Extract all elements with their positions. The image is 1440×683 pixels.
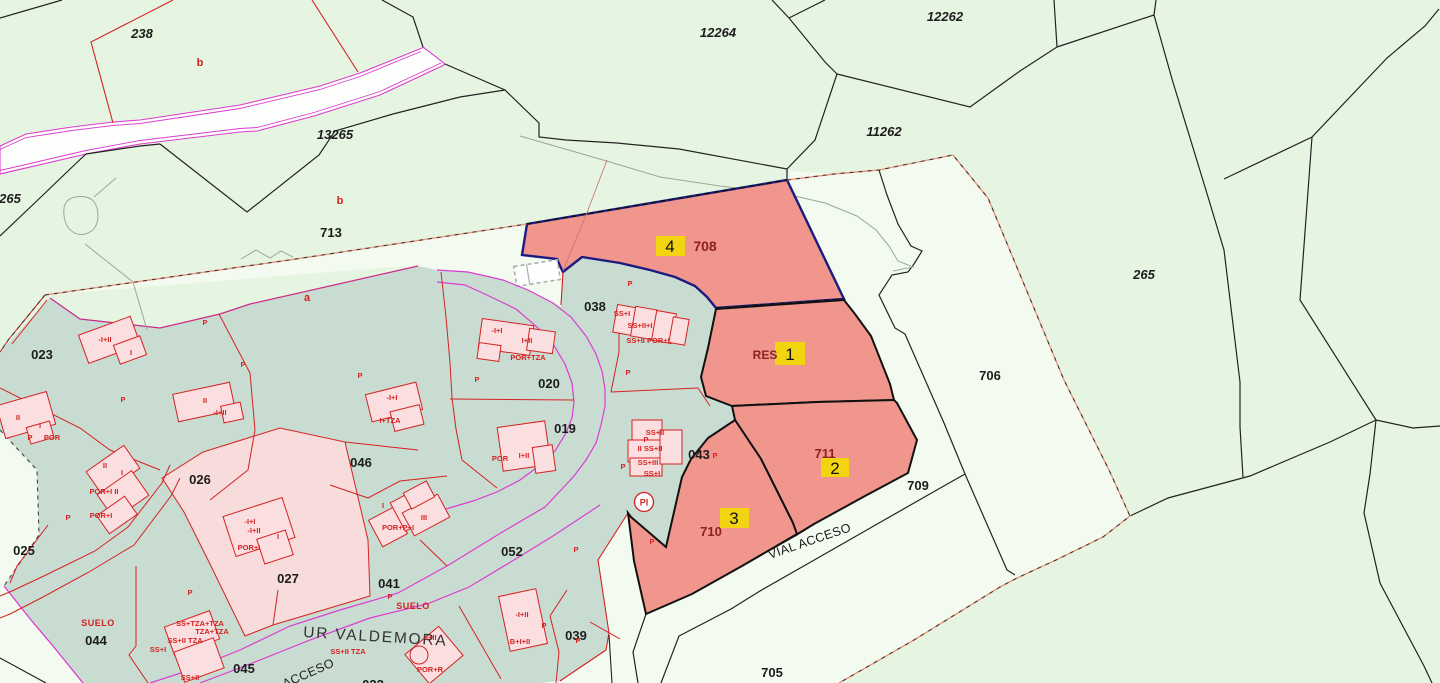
svg-text:SS+I: SS+I <box>614 309 630 318</box>
svg-text:1: 1 <box>785 345 794 364</box>
svg-text:020: 020 <box>538 376 560 391</box>
svg-text:II: II <box>103 461 107 470</box>
svg-text:SS+II: SS+II <box>646 428 665 437</box>
svg-text:-I+II: -I+II <box>98 335 111 344</box>
svg-text:RES: RES <box>753 348 778 362</box>
svg-text:P: P <box>65 513 70 522</box>
svg-text:13265: 13265 <box>317 127 354 142</box>
svg-text:II: II <box>16 413 20 422</box>
svg-text:POR+I: POR+I <box>90 511 113 520</box>
svg-text:265: 265 <box>0 191 22 206</box>
svg-text:12262: 12262 <box>927 9 964 24</box>
svg-text:P: P <box>474 375 479 384</box>
svg-text:SS+III: SS+III <box>638 458 659 467</box>
svg-text:038: 038 <box>584 299 606 314</box>
svg-text:SUELO: SUELO <box>396 601 430 611</box>
svg-text:II: II <box>203 396 207 405</box>
svg-text:POR: POR <box>492 454 509 463</box>
svg-text:-I+I: -I+I <box>386 393 397 402</box>
svg-text:023: 023 <box>31 347 53 362</box>
svg-text:044: 044 <box>85 633 107 648</box>
svg-text:TZA+TZA: TZA+TZA <box>195 627 229 636</box>
svg-text:POR+TZA: POR+TZA <box>510 353 546 362</box>
svg-text:713: 713 <box>320 225 342 240</box>
svg-text:III: III <box>421 513 427 522</box>
svg-text:12264: 12264 <box>700 25 737 40</box>
svg-text:I: I <box>39 421 41 430</box>
svg-text:b: b <box>197 57 204 69</box>
svg-text:P: P <box>625 368 630 377</box>
svg-text:SS+II POR+I: SS+II POR+I <box>626 336 669 345</box>
svg-text:265: 265 <box>1132 267 1155 282</box>
svg-text:B+I+II: B+I+II <box>510 637 530 646</box>
svg-text:P: P <box>27 433 32 442</box>
svg-text:P: P <box>357 371 362 380</box>
svg-text:022: 022 <box>362 677 384 683</box>
svg-text:P: P <box>541 621 546 630</box>
svg-text:P: P <box>575 636 580 645</box>
svg-text:P: P <box>573 545 578 554</box>
svg-text:043: 043 <box>688 447 710 462</box>
svg-text:041: 041 <box>378 576 400 591</box>
svg-text:SS+II: SS+II <box>181 673 200 682</box>
svg-text:11262: 11262 <box>866 124 902 139</box>
svg-text:P: P <box>202 318 207 327</box>
svg-text:711: 711 <box>815 446 836 461</box>
svg-text:P: P <box>187 588 192 597</box>
svg-text:4: 4 <box>665 237 674 256</box>
svg-text:2: 2 <box>830 459 839 478</box>
svg-text:b: b <box>337 195 344 207</box>
svg-text:-I+I: -I+I <box>244 517 255 526</box>
svg-text:-I+II: -I+II <box>423 633 436 642</box>
svg-text:I: I <box>382 501 384 510</box>
svg-text:I: I <box>130 348 132 357</box>
svg-text:P: P <box>620 462 625 471</box>
svg-text:I+TZA: I+TZA <box>379 416 401 425</box>
svg-text:SS+II TZA: SS+II TZA <box>330 647 366 656</box>
svg-text:-I+II: -I+II <box>247 526 260 535</box>
svg-text:3: 3 <box>729 509 738 528</box>
svg-text:PI: PI <box>640 498 649 508</box>
svg-text:POR+R: POR+R <box>417 665 444 674</box>
svg-text:019: 019 <box>554 421 576 436</box>
svg-text:II SS+II: II SS+II <box>638 444 663 453</box>
svg-text:SS+I: SS+I <box>150 645 166 654</box>
svg-text:POR: POR <box>44 433 61 442</box>
svg-text:709: 709 <box>907 478 929 493</box>
svg-text:P: P <box>387 592 392 601</box>
svg-text:052: 052 <box>501 544 523 559</box>
svg-text:I+II: I+II <box>522 336 533 345</box>
svg-text:710: 710 <box>700 524 722 539</box>
svg-text:SS+I: SS+I <box>644 469 660 478</box>
svg-text:I: I <box>121 468 123 477</box>
svg-text:P: P <box>712 451 717 460</box>
svg-text:708: 708 <box>693 238 717 254</box>
svg-text:SS+II TZA: SS+II TZA <box>167 636 203 645</box>
svg-text:POR+P+I: POR+P+I <box>382 523 414 532</box>
svg-text:P: P <box>649 537 654 546</box>
svg-text:045: 045 <box>233 661 255 676</box>
svg-text:P: P <box>240 360 245 369</box>
svg-text:SUELO: SUELO <box>81 618 115 628</box>
svg-text:POR+I II: POR+I II <box>90 487 119 496</box>
svg-text:238: 238 <box>130 26 153 41</box>
svg-text:I+II: I+II <box>519 451 530 460</box>
svg-text:026: 026 <box>189 472 211 487</box>
svg-text:-I+I: -I+I <box>491 326 502 335</box>
svg-text:027: 027 <box>277 571 299 586</box>
svg-text:046: 046 <box>350 455 372 470</box>
svg-text:POR+I: POR+I <box>238 543 261 552</box>
svg-text:P: P <box>120 395 125 404</box>
svg-text:-I+II: -I+II <box>515 610 528 619</box>
svg-text:025: 025 <box>13 543 35 558</box>
svg-text:-I+II: -I+II <box>213 408 226 417</box>
svg-text:a: a <box>304 292 311 304</box>
svg-text:706: 706 <box>979 368 1001 383</box>
svg-text:705: 705 <box>761 665 783 680</box>
svg-text:P: P <box>627 279 632 288</box>
svg-text:I: I <box>277 532 279 541</box>
svg-text:SS+II+I: SS+II+I <box>627 321 652 330</box>
